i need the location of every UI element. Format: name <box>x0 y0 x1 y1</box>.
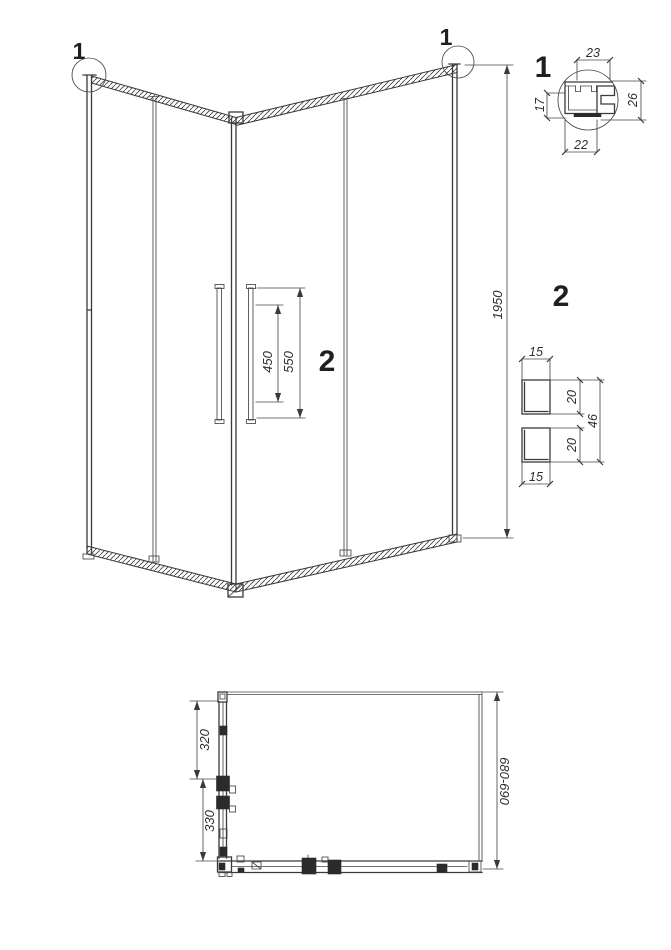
callout-left-label: 1 <box>73 38 86 64</box>
plan-top-edge <box>227 692 482 695</box>
dim-handle-bottom-width-label: 15 <box>529 470 543 484</box>
dim-handle-spacing: 450 <box>256 305 283 402</box>
callout-right-label: 1 <box>440 24 453 50</box>
plan-rail-end-fitting <box>472 863 478 870</box>
dim-profile-top-label: 23 <box>585 46 600 60</box>
door-glass-edge <box>341 99 350 556</box>
dim-handle-spacing-label: 450 <box>260 350 275 372</box>
dim-handle-lower-height-label: 20 <box>565 438 579 453</box>
plan-bottom-stop <box>238 868 244 872</box>
left-wall-post <box>83 75 96 554</box>
detail-1: 1 23 17 26 22 <box>533 46 646 152</box>
top-rail-right <box>236 65 457 126</box>
dim-profile-left: 17 <box>533 93 565 118</box>
bottom-rail-left <box>87 546 236 592</box>
dim-handle-bottom-width: 15 <box>522 462 550 484</box>
technical-drawing-page: 1 1 2 1950 450 550 1 <box>0 0 671 950</box>
dim-plan-depth: 680-690 <box>483 692 512 869</box>
wall-profile-section <box>565 82 615 117</box>
dim-profile-bottom-label: 22 <box>573 138 588 152</box>
door-roller-block <box>340 550 351 556</box>
detail-2: 2 15 20 20 46 15 <box>522 280 604 484</box>
detail-2-label: 2 <box>553 280 570 313</box>
dim-plan-upper: 320 <box>190 701 219 779</box>
dim-profile-right-label: 26 <box>626 93 640 108</box>
plan-bottom-stop-right <box>437 864 447 872</box>
plan-left-roller-bottom <box>220 847 227 856</box>
detail-1-circle <box>558 70 618 130</box>
corner-post <box>232 118 237 585</box>
dim-handle-upper-height: 20 <box>565 380 580 414</box>
plan-wall-profile <box>218 692 227 702</box>
dim-profile-bottom: 22 <box>565 120 597 152</box>
dim-handle-top-width: 15 <box>522 345 550 380</box>
plan-left-bracket-1 <box>217 776 230 791</box>
dim-plan-upper-label: 320 <box>197 728 212 750</box>
plan-wall-profile-inner <box>220 694 225 699</box>
dim-profile-left-label: 17 <box>533 97 547 112</box>
plan-view: 320 330 680-690 <box>190 692 512 877</box>
dim-handle-upper-height-label: 20 <box>565 390 579 405</box>
side-glass-edge <box>150 97 159 562</box>
handle-bar <box>217 288 222 420</box>
dim-height: 1950 <box>463 65 513 538</box>
door-handle-right <box>247 285 256 424</box>
dim-handle-length-label: 550 <box>281 350 296 372</box>
handle-bar <box>249 288 254 420</box>
plan-bottom-guide-2 <box>252 862 261 869</box>
dim-handle-overall: 46 <box>586 380 600 462</box>
side-glass-foot <box>149 556 159 562</box>
top-rail-left <box>92 76 237 125</box>
plan-right-edge <box>479 692 482 861</box>
handle-section-bars <box>522 380 550 462</box>
plan-left-roller-top <box>220 726 227 735</box>
right-wall-post <box>449 64 460 534</box>
plan-left-bracket-2-tab <box>230 806 236 812</box>
detail-1-label: 1 <box>535 51 552 84</box>
door-handle-left <box>215 285 224 424</box>
dim-plan-depth-label: 680-690 <box>497 757 512 805</box>
plan-left-bracket-2 <box>217 796 230 809</box>
plan-bottom-roller-1 <box>302 858 316 874</box>
dim-handle-overall-label: 46 <box>586 414 600 428</box>
dim-plan-lower-label: 330 <box>202 809 217 831</box>
dim-handle-lower-height: 20 <box>565 428 580 462</box>
dim-height-label: 1950 <box>490 290 505 320</box>
elevation-view: 1 1 2 1950 450 550 <box>72 24 513 597</box>
callout-circle-right <box>442 46 474 78</box>
dim-plan-lower: 330 <box>196 779 219 861</box>
bottom-rail-right <box>236 534 457 592</box>
plan-left-bracket-1-tab <box>230 786 236 793</box>
dim-handle-top-width-label: 15 <box>529 345 543 359</box>
plan-bottom-roller-2 <box>328 860 341 874</box>
plan-corner-fitting <box>219 863 225 870</box>
door-panel-label: 2 <box>319 345 336 378</box>
shower-enclosure-drawing: 1 1 2 1950 450 550 1 <box>0 0 671 950</box>
